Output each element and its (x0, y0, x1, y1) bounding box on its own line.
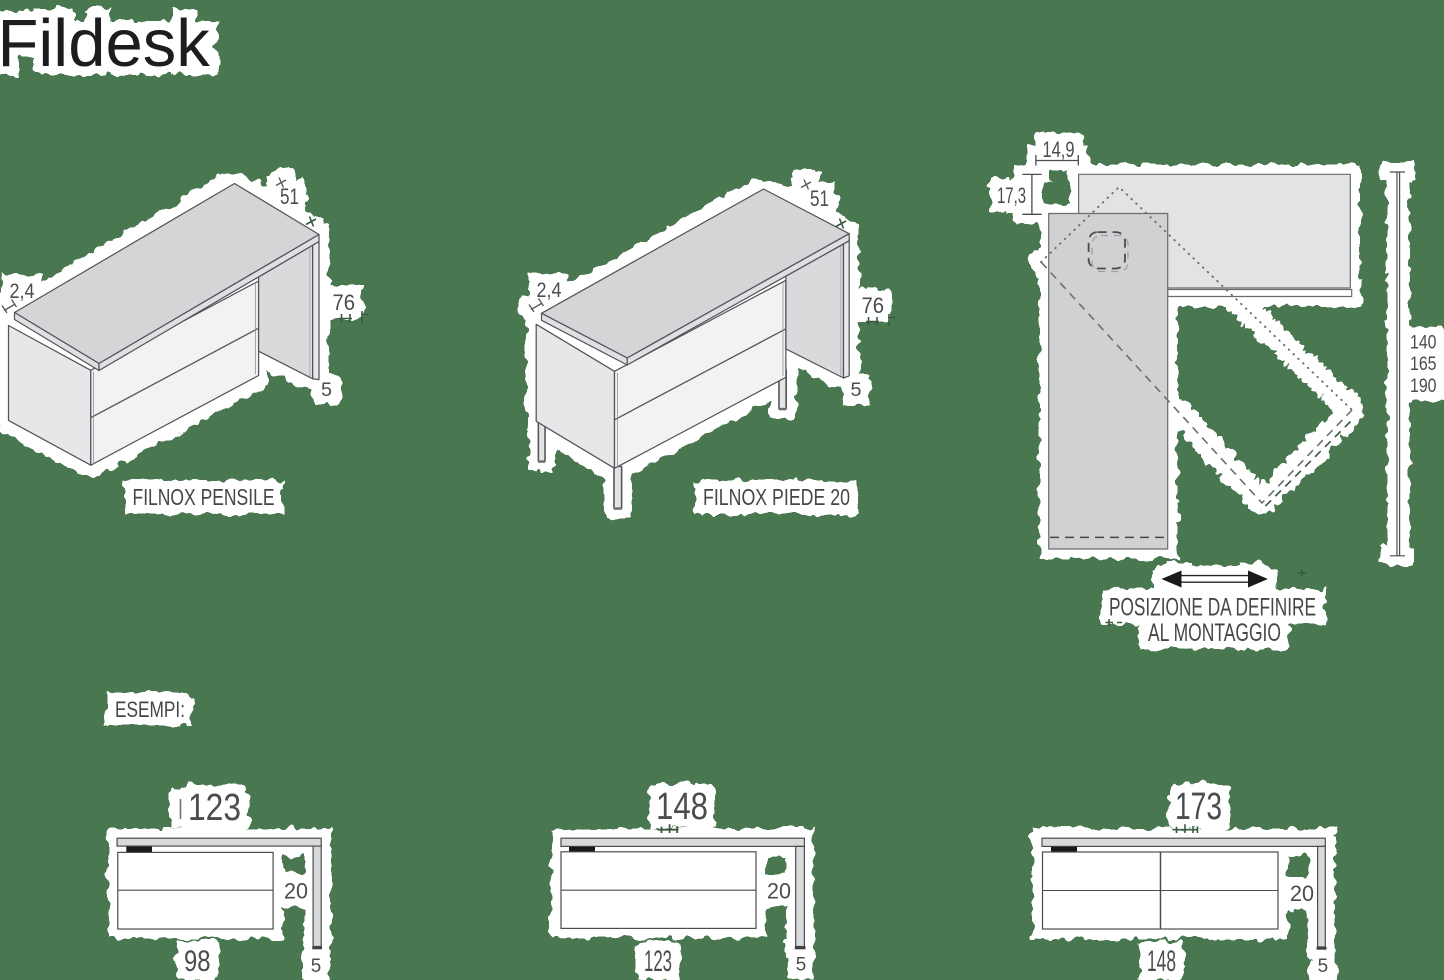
svg-text:Fildesk: Fildesk (0, 6, 210, 81)
svg-text:98: 98 (184, 945, 211, 978)
svg-text:5: 5 (311, 956, 322, 977)
svg-text:FILNOX PENSILE: FILNOX PENSILE (133, 484, 275, 510)
svg-text:148: 148 (1147, 945, 1176, 978)
svg-text:76: 76 (333, 290, 356, 315)
svg-text:2,4: 2,4 (537, 279, 562, 302)
svg-text:5: 5 (1318, 956, 1329, 977)
svg-text:AL MONTAGGIO: AL MONTAGGIO (1148, 619, 1281, 647)
svg-text:51: 51 (280, 184, 299, 209)
svg-text:20: 20 (767, 878, 791, 903)
svg-text:148: 148 (656, 786, 708, 828)
svg-text:123: 123 (644, 945, 672, 978)
svg-text:2,4: 2,4 (10, 280, 35, 303)
svg-text:165: 165 (1410, 353, 1437, 375)
svg-text:123: 123 (188, 787, 241, 829)
svg-text:5: 5 (796, 954, 807, 975)
svg-text:5: 5 (321, 380, 332, 401)
svg-text:FILNOX PIEDE 20: FILNOX PIEDE 20 (703, 484, 850, 510)
svg-text:51: 51 (810, 186, 829, 211)
svg-text:190: 190 (1410, 375, 1437, 397)
svg-text:173: 173 (1175, 786, 1222, 828)
svg-text:20: 20 (1290, 881, 1314, 906)
svg-text:20: 20 (284, 878, 308, 903)
svg-text:140: 140 (1410, 332, 1437, 354)
svg-text:14,9: 14,9 (1043, 137, 1075, 162)
svg-text:5: 5 (851, 380, 862, 401)
svg-text:76: 76 (862, 293, 885, 318)
svg-text:POSIZIONE DA DEFINIRE: POSIZIONE DA DEFINIRE (1109, 594, 1316, 622)
svg-text:17,3: 17,3 (997, 183, 1026, 208)
svg-text:ESEMPI:: ESEMPI: (115, 697, 185, 722)
